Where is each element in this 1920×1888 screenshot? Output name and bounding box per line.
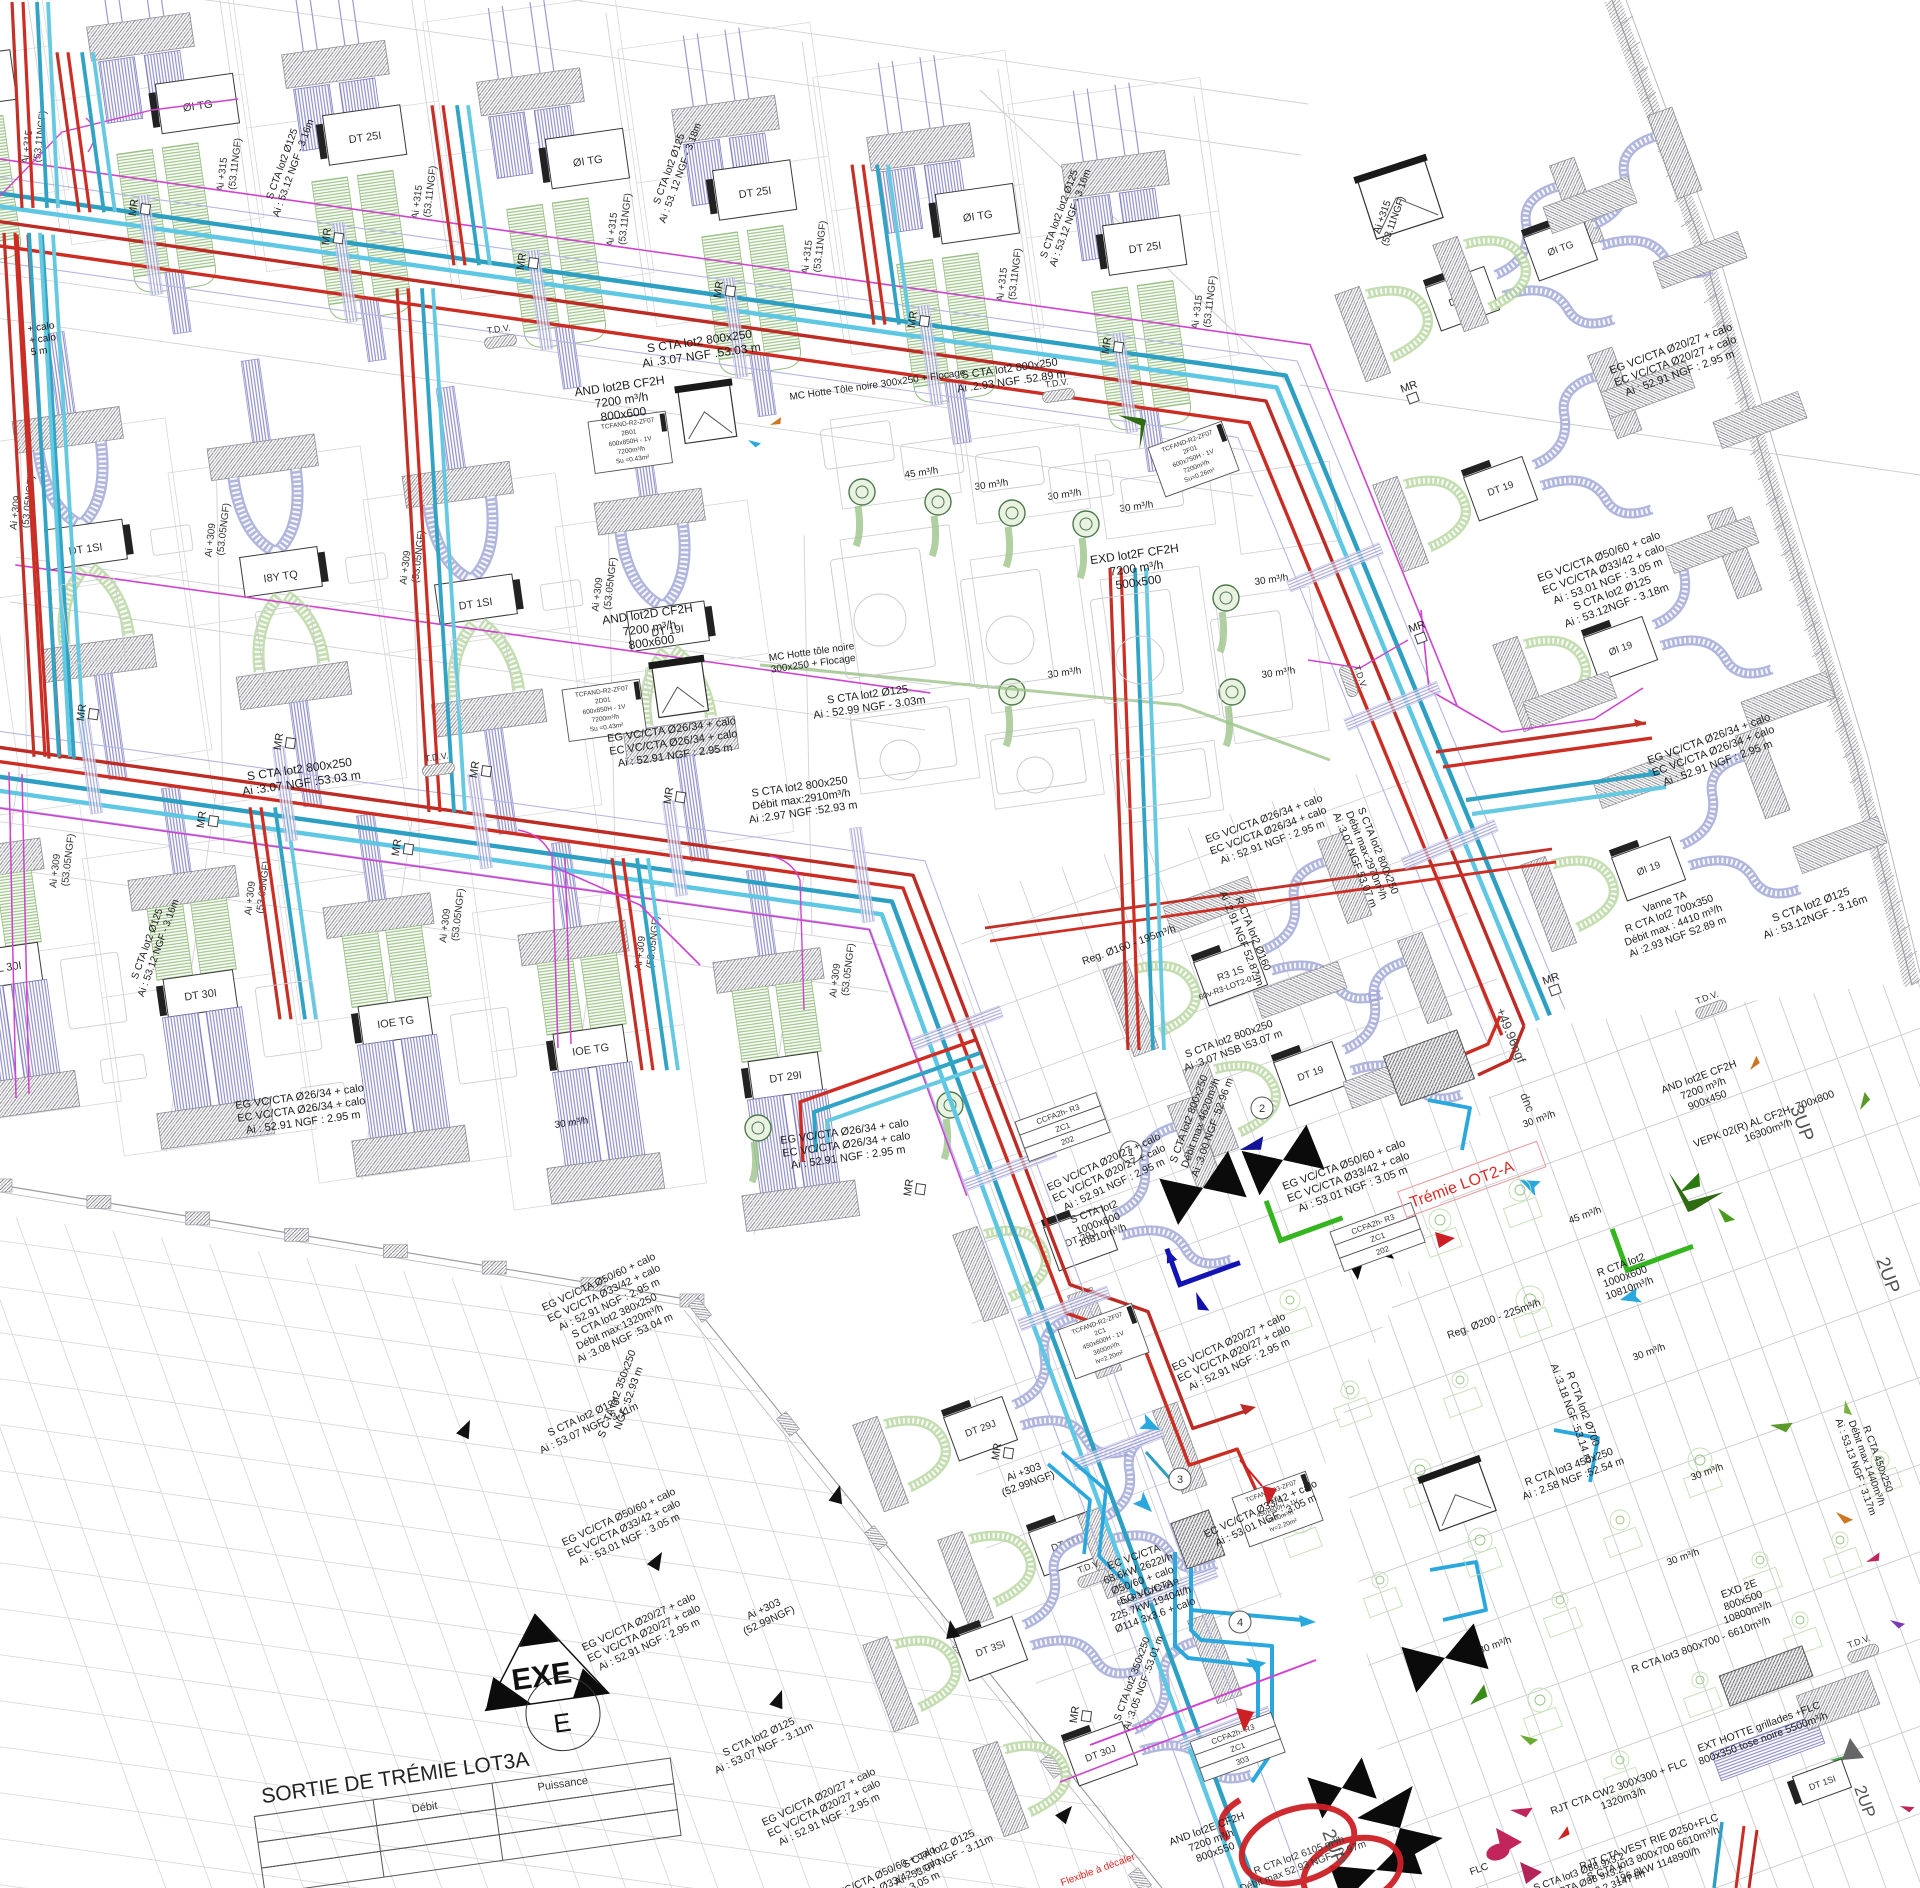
svg-text:MR: MR — [390, 838, 404, 857]
svg-text:MR: MR — [902, 1178, 916, 1197]
svg-text:MR: MR — [320, 227, 334, 246]
svg-text:3: 3 — [1177, 1474, 1183, 1486]
svg-text:MR: MR — [1100, 336, 1114, 355]
svg-text:MR: MR — [990, 1442, 1004, 1461]
svg-text:MR: MR — [75, 703, 89, 722]
svg-text:MR: MR — [906, 310, 920, 329]
svg-text:MR: MR — [515, 252, 529, 271]
svg-text:MR: MR — [1068, 1705, 1082, 1724]
svg-text:MR: MR — [662, 786, 676, 805]
svg-text:5 m: 5 m — [30, 345, 48, 358]
svg-text:MR: MR — [195, 810, 209, 829]
svg-text:MR: MR — [127, 198, 141, 217]
svg-text:MR: MR — [468, 760, 482, 779]
svg-text:MR: MR — [272, 732, 286, 751]
svg-text:4: 4 — [1237, 1617, 1243, 1629]
svg-text:MR: MR — [712, 280, 726, 299]
svg-text:2: 2 — [1259, 1103, 1265, 1115]
